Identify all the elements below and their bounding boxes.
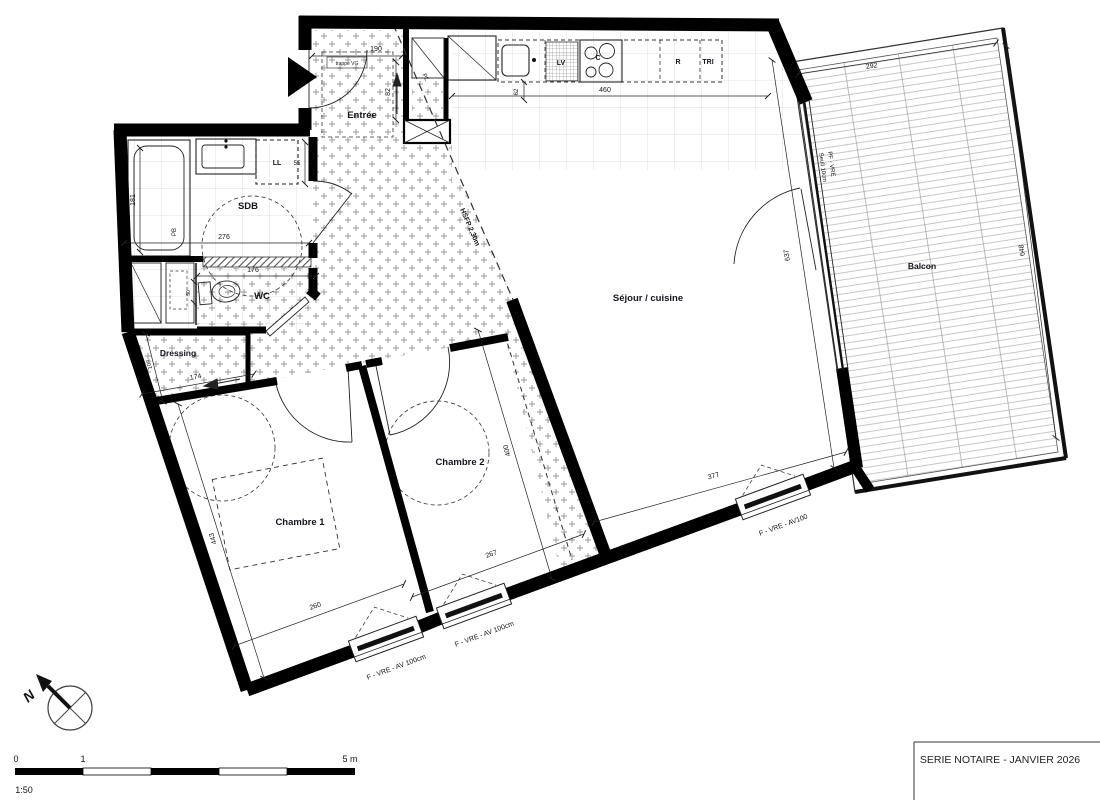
north-arrow: N xyxy=(20,674,92,730)
dim-260: 260 xyxy=(309,601,322,612)
label-lv: LV xyxy=(557,60,566,67)
room-label-chambre2: Chambre 2 xyxy=(435,457,484,468)
dim-400: 400 xyxy=(503,444,513,457)
label-trappe-vg: trappe VG xyxy=(336,61,359,67)
label-pb: PB xyxy=(172,228,178,236)
dim-276: 276 xyxy=(218,234,230,241)
room-label-sdb: SDB xyxy=(238,201,258,212)
room-label-balcon: Balcon xyxy=(908,261,936,271)
dim-82: 82 xyxy=(385,88,392,96)
room-label-dressing: Dressing xyxy=(160,348,196,358)
window-label-sejour: F - VRE - AV100 xyxy=(758,513,809,537)
chambre2-door xyxy=(375,347,450,435)
dim-55: 55 xyxy=(294,161,301,167)
dim-176: 176 xyxy=(247,267,259,274)
dim-637: 637 xyxy=(783,249,792,262)
dim-50: 50 xyxy=(186,290,192,296)
window-chambre1: F - VRE - AV 100cm xyxy=(340,595,431,684)
window-label-chambre1: F - VRE - AV 100cm xyxy=(366,653,427,681)
plan-title: SERIE NOTAIRE - JANVIER 2026 xyxy=(920,754,1080,766)
bed-chambre1 xyxy=(212,458,339,570)
balcony xyxy=(792,28,1066,492)
dim-181: 181 xyxy=(130,194,137,206)
dim-443: 443 xyxy=(208,532,218,545)
room-label-wc: WC xyxy=(254,291,270,302)
dim-190: 190 xyxy=(370,46,382,53)
balcony-door xyxy=(734,188,816,270)
room-label-chambre1: Chambre 1 xyxy=(275,517,325,528)
floor-plan: F - VRE - AV100 F - VRE - AV 100cm F - V… xyxy=(0,0,1100,800)
scale-ratio: 1:50 xyxy=(15,785,33,795)
sliding-door xyxy=(203,257,311,267)
turning-circle-chambre2 xyxy=(385,401,489,505)
window-chambre2: F - VRE - AV 100cm xyxy=(428,562,519,651)
scale-tick-5: 5 m xyxy=(342,754,357,764)
room-label-sejour: Séjour / cuisine xyxy=(613,293,683,304)
chambre1-door xyxy=(276,368,352,442)
north-label: N xyxy=(20,686,39,705)
scale-tick-0: 0 xyxy=(13,754,18,764)
window-label-chambre2: F - VRE - AV 100cm xyxy=(454,620,515,648)
scale-tick-1: 1 xyxy=(80,754,85,764)
label-r: R xyxy=(675,59,680,66)
scale-bar: 0 1 5 m 1:50 xyxy=(13,754,357,795)
dim-62: 62 xyxy=(514,88,520,95)
label-ll: LL xyxy=(273,160,282,167)
room-label-entree: Entrée xyxy=(347,110,377,121)
dim-267: 267 xyxy=(485,549,498,560)
label-c: C xyxy=(595,55,600,62)
tap xyxy=(532,58,536,62)
title-block: SERIE NOTAIRE - JANVIER 2026 xyxy=(914,742,1100,800)
dim-377: 377 xyxy=(707,472,720,482)
window-sejour: F - VRE - AV100 xyxy=(727,453,818,542)
dim-460: 460 xyxy=(599,87,611,94)
label-tri: TRI xyxy=(702,59,713,66)
